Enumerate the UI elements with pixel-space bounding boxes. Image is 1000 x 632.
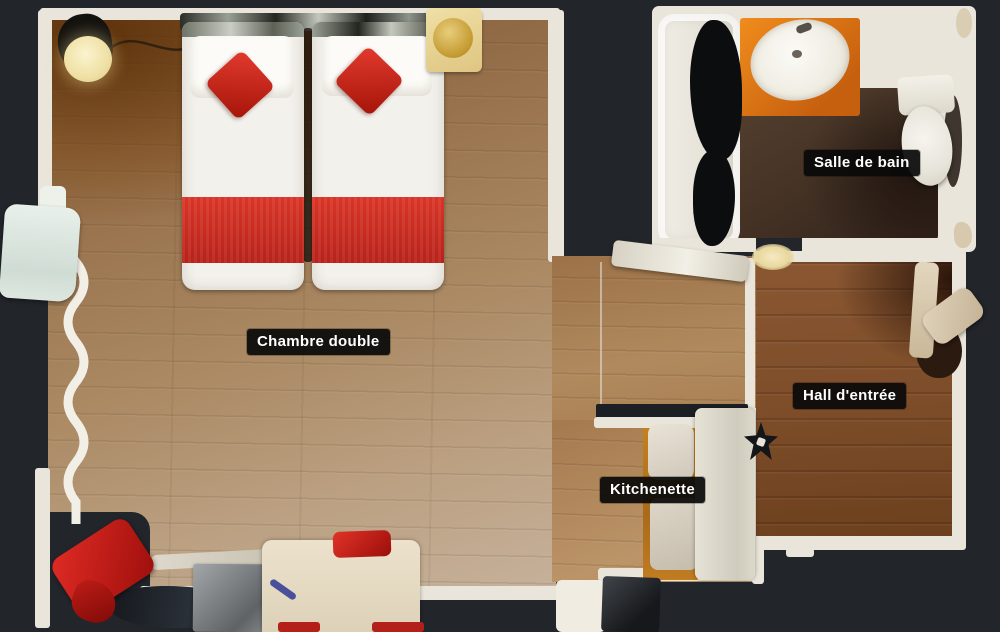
room-label-hall-entree[interactable]: Hall d'entrée — [793, 383, 906, 409]
bathroom-wall-bottom — [652, 238, 974, 251]
hall-doorstep-tab — [786, 548, 814, 557]
red-bottom-edge-item-1 — [278, 622, 320, 632]
hall-ceiling-light-glow — [752, 244, 794, 270]
kitchen-appliance-top — [648, 424, 694, 480]
corridor-floor-seam — [600, 262, 602, 412]
desk-red-tray — [333, 530, 392, 558]
white-cabinet-bottom — [556, 580, 606, 632]
bed-right — [312, 22, 444, 290]
hall-wall-bottom — [752, 536, 966, 550]
gray-side-table — [193, 564, 268, 632]
bathroom-corner-blob-right — [954, 222, 972, 248]
floor-plan-scene: Chambre double Salle de bain Hall d'entr… — [0, 0, 1000, 632]
corridor-right-wall — [745, 258, 755, 416]
red-bottom-edge-item-2 — [372, 622, 424, 632]
room-label-chambre-double[interactable]: Chambre double — [247, 329, 390, 355]
corridor-floor — [552, 256, 756, 422]
sink-drain — [792, 50, 802, 58]
bed-right-red-runner — [312, 197, 444, 263]
bed-right-headboard — [312, 22, 444, 37]
bedroom-wall-right — [548, 10, 564, 262]
bed-left — [182, 22, 304, 290]
room-label-kitchenette[interactable]: Kitchenette — [600, 477, 705, 503]
tv-panel — [601, 576, 661, 632]
ac-unit — [0, 203, 81, 302]
bedroom-wall-left-lower — [35, 468, 50, 628]
bed-left-headboard — [182, 22, 304, 37]
bed-left-red-runner — [182, 197, 304, 263]
bathroom-corner-blob-top — [956, 8, 972, 38]
room-label-salle-de-bain[interactable]: Salle de bain — [804, 150, 920, 176]
nightstand-gold-tray — [433, 18, 473, 58]
kitchen-appliance-bottom — [650, 498, 698, 570]
ceiling-lamp-glow — [64, 36, 112, 82]
